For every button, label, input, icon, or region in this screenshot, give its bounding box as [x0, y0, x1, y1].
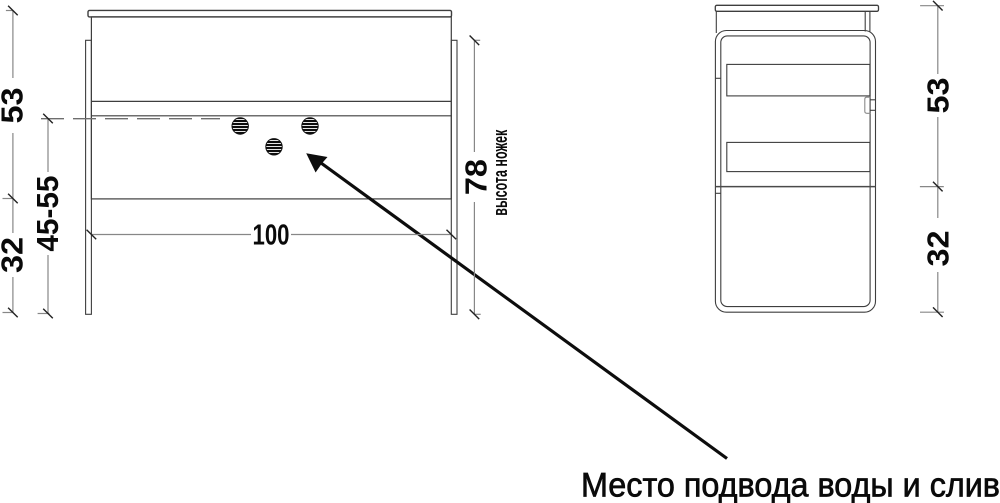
svg-text:высота ножек: высота ножек	[490, 129, 512, 216]
svg-text:Место подвода воды и слив: Место подвода воды и слив	[581, 467, 1000, 503]
svg-text:32: 32	[0, 237, 30, 273]
svg-text:53: 53	[921, 78, 956, 114]
svg-text:78: 78	[459, 159, 494, 195]
svg-text:32: 32	[921, 231, 956, 267]
svg-text:100: 100	[253, 219, 290, 251]
svg-text:53: 53	[0, 88, 30, 124]
svg-text:45-55: 45-55	[30, 176, 65, 252]
